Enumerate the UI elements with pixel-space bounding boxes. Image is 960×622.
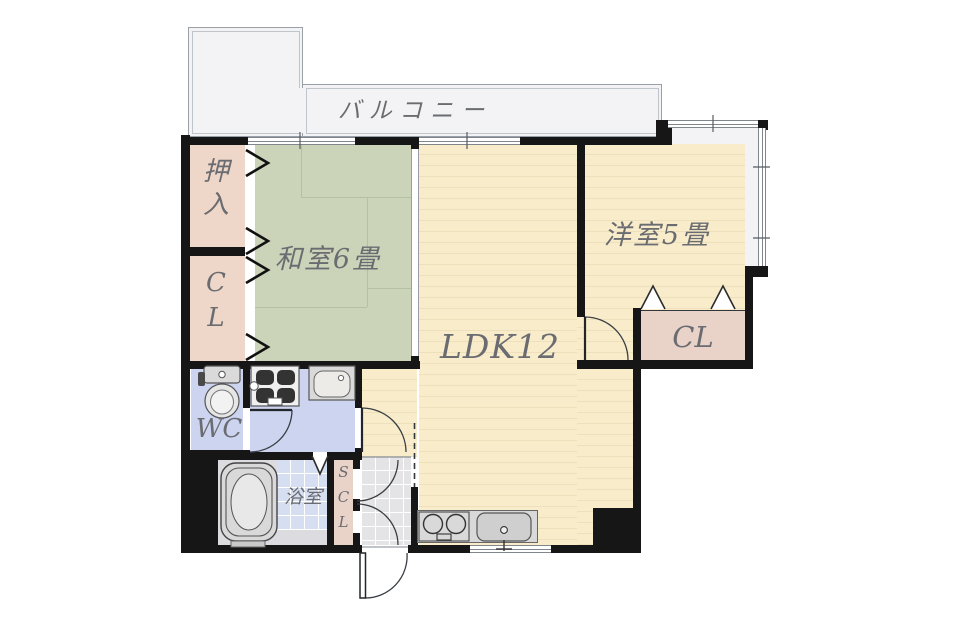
wall-pillar: [181, 453, 218, 551]
wall-segment: [353, 533, 360, 545]
wall-segment: [520, 137, 585, 145]
tatami-line: [255, 307, 367, 308]
wall-segment: [577, 360, 752, 369]
washroom-floor: [250, 369, 355, 452]
bathroom-label: 浴室: [279, 486, 327, 510]
sliding-door-cap: [411, 144, 419, 149]
wall-segment: [585, 137, 660, 145]
balcony-area-left: [188, 27, 303, 137]
wall-segment: [181, 545, 362, 553]
western-room-label: 洋室5畳: [577, 219, 737, 253]
western-room-window-bay-right: [745, 128, 758, 266]
wall-segment: [353, 457, 360, 469]
window: [248, 137, 355, 145]
entry-tiles: [362, 457, 411, 545]
ldk-label: LDK12: [420, 326, 580, 367]
balcony-label: バルコニー: [300, 97, 530, 126]
tatami-line: [301, 144, 302, 197]
window: [470, 545, 551, 553]
window: [668, 120, 758, 128]
wall-segment: [355, 137, 419, 145]
wall-segment: [353, 499, 360, 511]
wall-segment: [190, 247, 245, 256]
wall-segment: [181, 361, 420, 369]
wall-segment: [408, 545, 470, 553]
hall-floor: [362, 369, 417, 457]
wall-segment: [355, 369, 362, 408]
wall-segment: [181, 137, 248, 145]
wc-label: WC: [192, 413, 246, 446]
floor-plan: バルコニー 和室6畳 洋室5畳 LDK12 押 入 C L CL WC 浴室 S…: [0, 0, 960, 622]
tatami-line: [367, 288, 411, 289]
balcony-inner-line: [192, 31, 300, 134]
wall-segment: [243, 369, 250, 408]
wall-segment: [327, 460, 334, 545]
wall-segment: [745, 266, 753, 369]
oshiire-label: 押 入: [196, 156, 236, 221]
kitchen-counter: [417, 510, 538, 543]
window: [419, 137, 520, 145]
entrance-door-leaf: [360, 553, 366, 598]
western-room-window-bay-top: [668, 128, 745, 144]
window: [758, 128, 766, 266]
closet-right-label: CL: [655, 319, 731, 355]
sliding-door: [411, 144, 419, 361]
wall-segment: [218, 452, 313, 460]
wall-pillar: [593, 508, 638, 553]
shoe-closet-label: S C L: [334, 460, 353, 534]
japanese-room-label: 和室6畳: [248, 243, 408, 277]
closet-left-label: C L: [198, 266, 234, 336]
sliding-door-cap: [411, 356, 419, 361]
tatami-line: [301, 197, 411, 198]
